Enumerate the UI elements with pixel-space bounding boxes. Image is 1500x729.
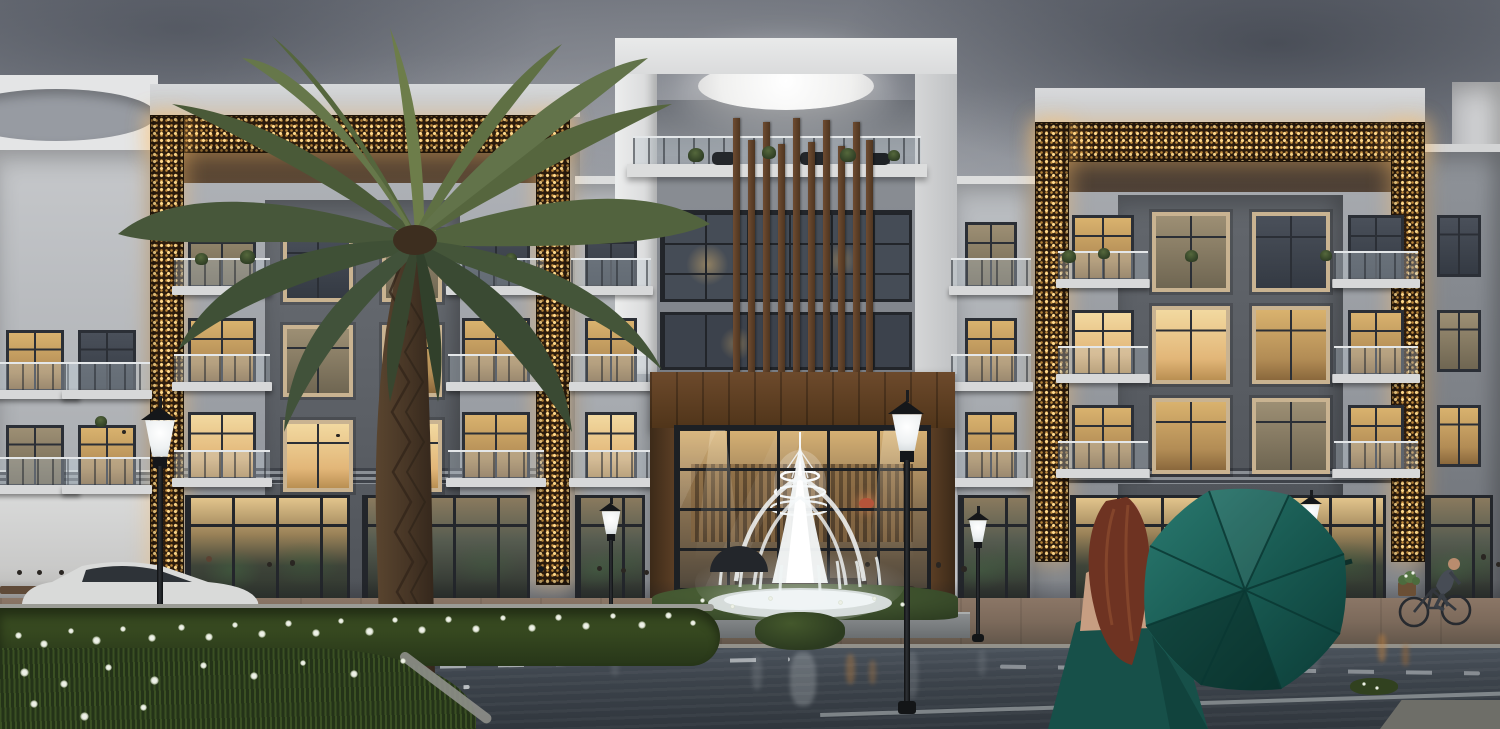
terrace-chair: [868, 153, 890, 165]
mid-right-coping: [957, 176, 1035, 184]
far-right-coping: [1425, 144, 1500, 152]
grass-tuft: [755, 612, 845, 650]
woman-with-umbrella: [1020, 455, 1370, 729]
architectural-rendering-scene: [0, 0, 1500, 729]
cyclist: [1392, 540, 1478, 632]
center-frame-pillar-right: [915, 38, 957, 374]
gold-lattice-frame-right-strip: [1391, 122, 1425, 562]
terrace-chair: [800, 152, 828, 165]
right-roof-coping: [1035, 88, 1425, 122]
gold-lattice-frame-right-top: [1035, 122, 1425, 162]
illuminated-fountain: [690, 415, 910, 630]
